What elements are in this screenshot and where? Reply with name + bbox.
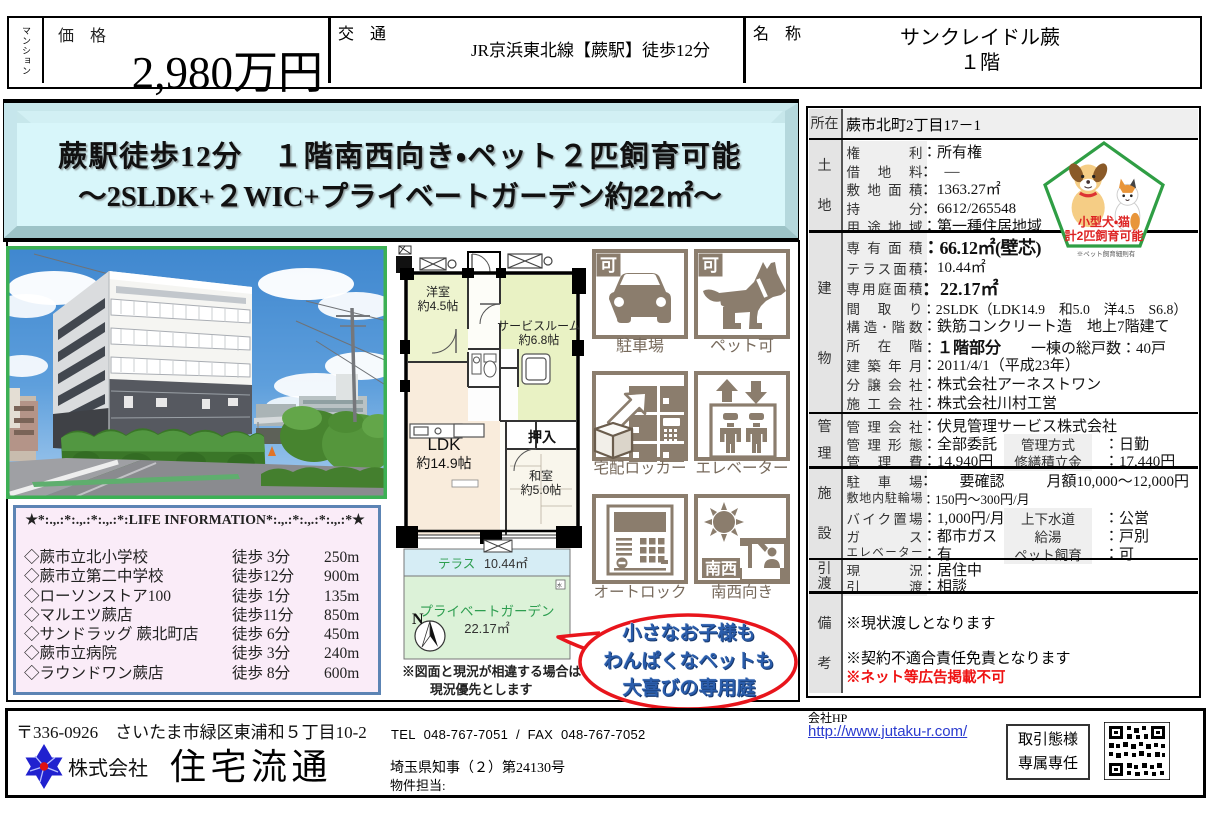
svg-text:約14.9帖: 約14.9帖	[416, 455, 471, 471]
svg-text:※ペット飼育細則有: ※ペット飼育細則有	[1077, 249, 1136, 258]
svg-text:宅配ロッカー: 宅配ロッカー	[593, 459, 686, 477]
svg-text:駐車場: 駐車場	[616, 337, 664, 355]
svg-text:LDK: LDK	[427, 435, 461, 454]
svg-text:押入: 押入	[528, 429, 556, 445]
svg-text:南西: 南西	[705, 559, 737, 578]
svg-text:水: 水	[557, 582, 562, 589]
svg-text:テラス: テラス	[438, 557, 475, 571]
svg-text:10.44㎡: 10.44㎡	[484, 557, 528, 571]
svg-text:和室: 和室	[529, 469, 553, 483]
svg-text:可: 可	[600, 256, 617, 275]
svg-text:ペット可: ペット可	[710, 338, 774, 355]
svg-text:N: N	[412, 611, 424, 628]
svg-text:約6.8帖: 約6.8帖	[519, 332, 560, 347]
svg-text:エレベーター: エレベーター	[695, 459, 788, 477]
svg-text:洋室: 洋室	[426, 284, 450, 299]
svg-text:サービスルーム: サービスルーム	[497, 319, 581, 333]
svg-text:計2匹飼育可能: 計2匹飼育可能	[1065, 228, 1144, 243]
svg-text:約4.5帖: 約4.5帖	[418, 298, 459, 313]
svg-text:小型犬・猫: 小型犬・猫	[1078, 214, 1130, 229]
svg-text:約5.0帖: 約5.0帖	[521, 482, 562, 497]
svg-text:可: 可	[702, 256, 719, 275]
